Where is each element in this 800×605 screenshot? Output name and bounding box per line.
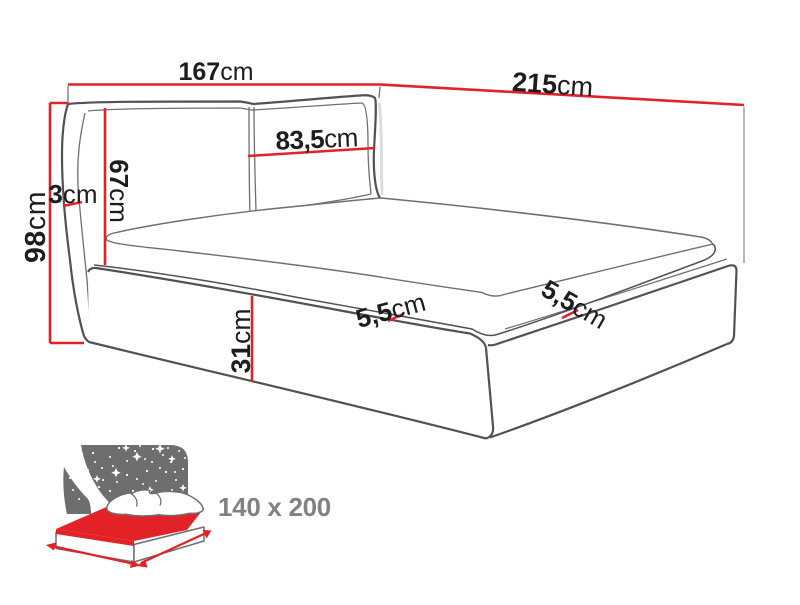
svg-text:3cm: 3cm <box>48 179 97 209</box>
svg-text:167cm: 167cm <box>178 58 253 86</box>
svg-text:83,5cm: 83,5cm <box>275 122 359 156</box>
svg-text:98cm: 98cm <box>20 191 52 263</box>
svg-text:67cm: 67cm <box>104 159 134 223</box>
svg-text:31cm: 31cm <box>226 309 256 374</box>
svg-text:215cm: 215cm <box>511 67 594 103</box>
svg-text:140 x 200: 140 x 200 <box>218 492 331 522</box>
